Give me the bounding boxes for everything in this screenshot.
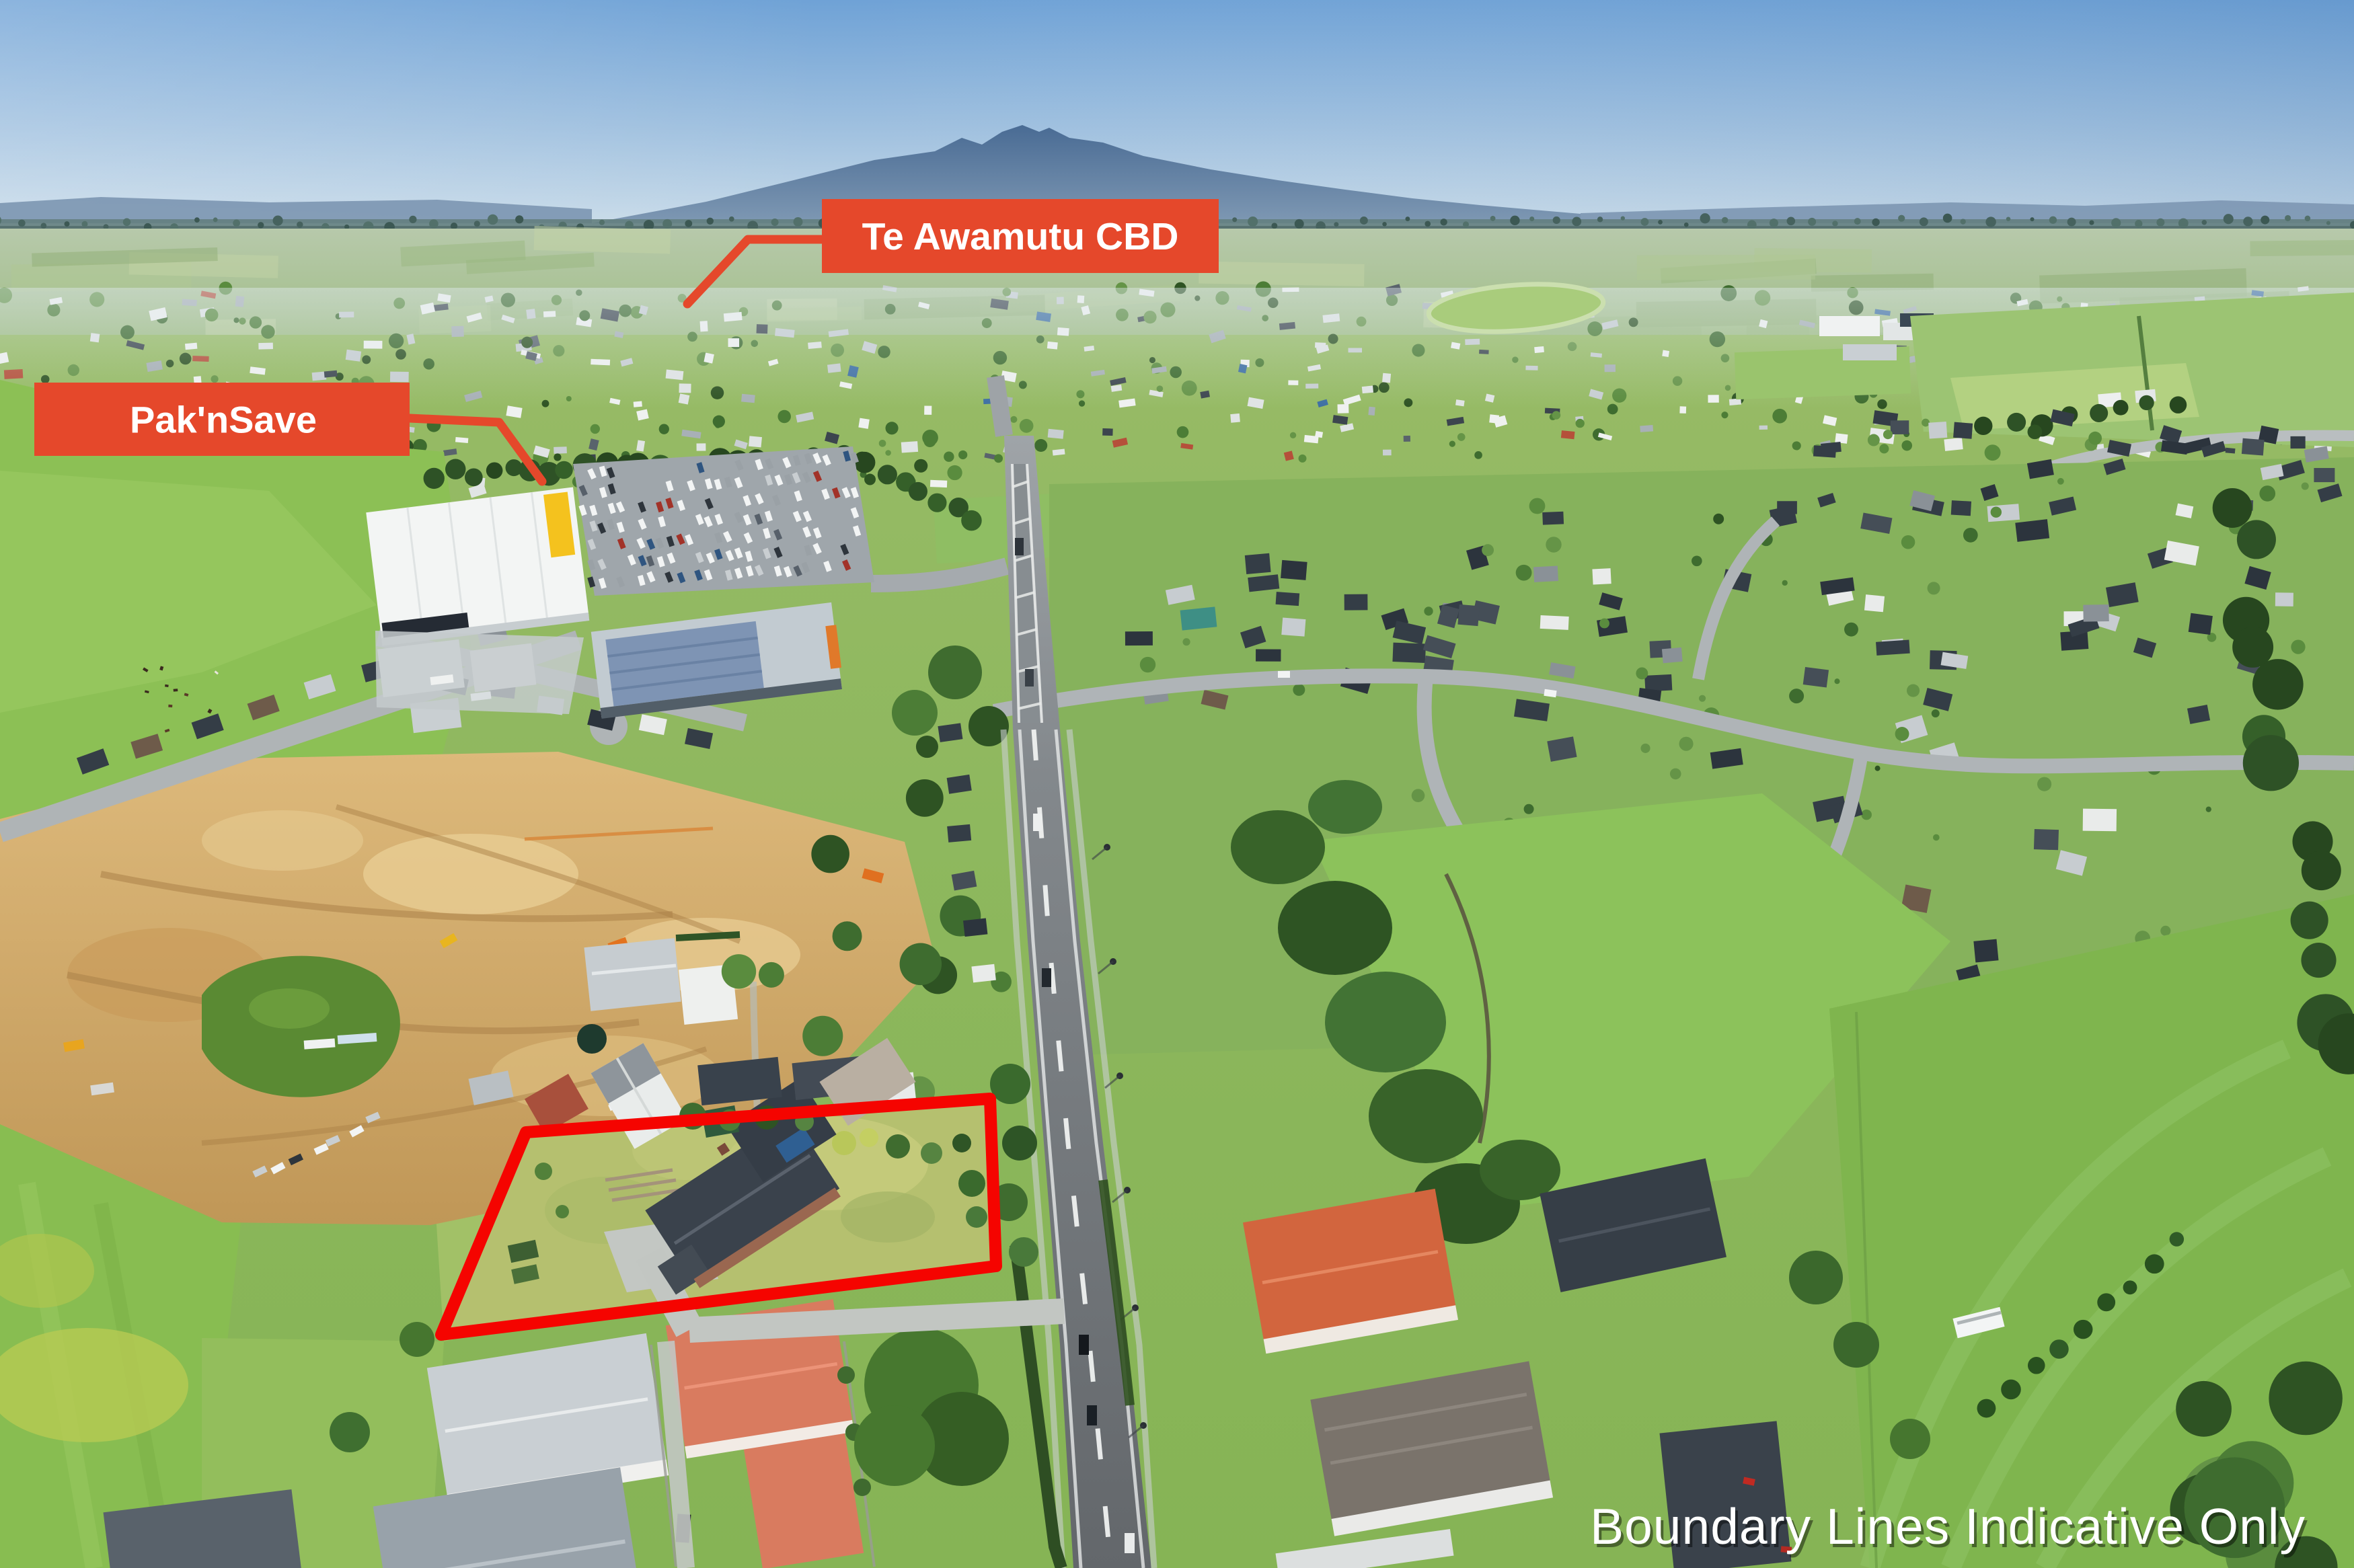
disclaimer-label: Boundary Lines Indicative Only <box>1590 1498 2306 1555</box>
cbd-label-text: Te Awamutu CBD <box>862 215 1179 258</box>
pak-n-save-label-text: Pak'nSave <box>130 399 317 441</box>
aerial-photo: Pak'nSave Te Awamutu CBD Boundary Lines … <box>0 0 2354 1568</box>
disclaimer-text: Boundary Lines Indicative Only Boundary … <box>1590 1498 2308 1558</box>
